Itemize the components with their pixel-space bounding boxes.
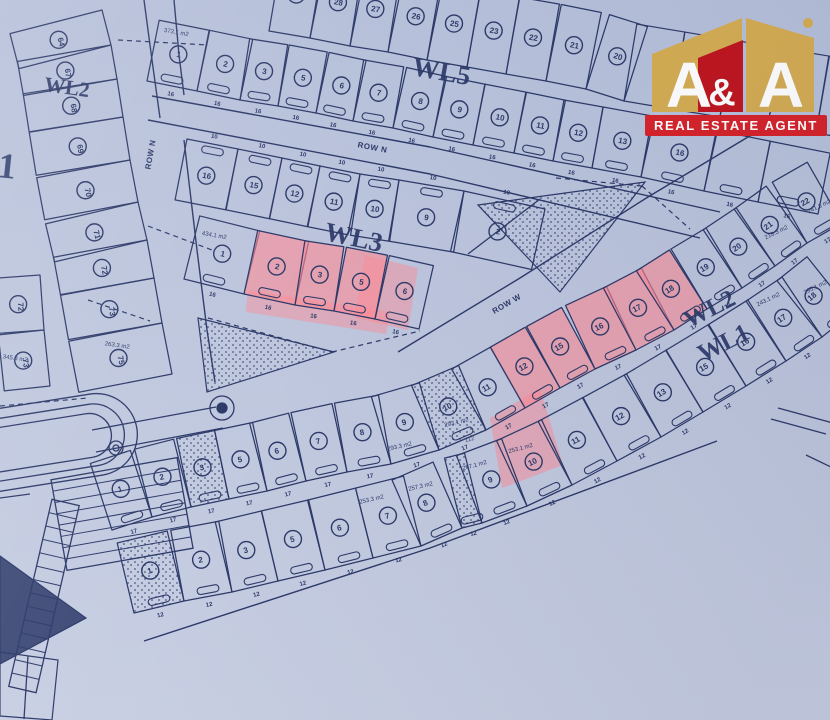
cadastral-plot-map-screenshot: 2928272625232221201611621631651661671681… — [0, 0, 830, 720]
agency-logo: A & A REAL ESTATE AGENT — [642, 6, 830, 142]
logo-ampersand: & — [708, 72, 735, 114]
logo-letter-a1: A — [666, 49, 712, 121]
plot-number: 72 — [16, 302, 26, 312]
facility-circle — [217, 403, 227, 413]
logo-registered-dot — [803, 18, 813, 28]
logo-banner-text: REAL ESTATE AGENT — [654, 118, 818, 133]
logo-letter-a2: A — [758, 49, 804, 121]
